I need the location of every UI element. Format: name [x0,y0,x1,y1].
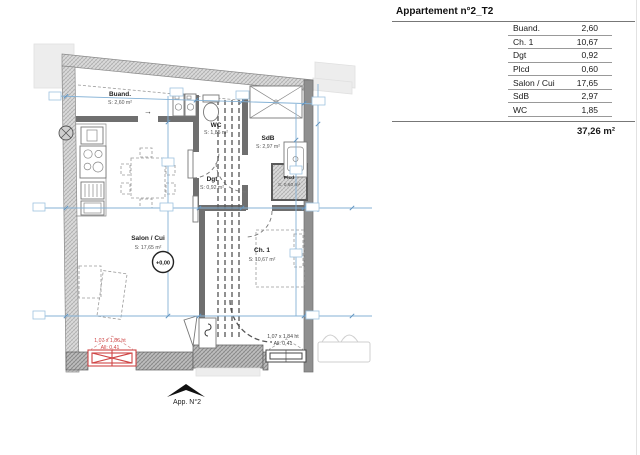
room-name-buand: Buand. [109,91,131,98]
room-area-plcd: S: 0,60 m² [278,182,301,188]
room-name-ch1: Ch. 1 [254,247,270,254]
room-area-sdb: S: 2,97 m² [256,144,280,150]
utility-meter-box [199,318,216,348]
row-label: Salon / Cui [508,79,555,88]
row-value: 0,92 [581,51,612,60]
row-value: 1,85 [581,106,612,115]
floorplan-page: +0,00 App. N°2 Buand. S: 2,60 m² WC S: 1… [0,0,640,455]
row-label: Plcd [508,65,530,74]
row-label: SdB [508,92,529,101]
shaft-lines [218,100,239,340]
row-label: WC [508,106,527,115]
row-value: 0,60 [581,65,612,74]
neighbor-terrace-furniture [318,335,370,362]
table-row: SdB 2,97 [508,90,612,104]
room-name-sdb: SdB [262,135,275,142]
entrance-arrow-icon [167,384,205,397]
room-name-wc: WC [211,122,222,129]
room-name-plcd: Plcd [284,175,294,181]
row-value: 2,60 [581,24,612,33]
room-name-salon: Salon / Cui [131,235,165,242]
area-table: Buand. 2,60 Ch. 1 10,67 Dgt 0,92 Plcd 0,… [508,22,612,117]
table-row: Ch. 1 10,67 [508,36,612,50]
page-edge-divider [636,0,637,455]
legend-bottom-rule [392,121,635,122]
bedroom-window-sill: All: 0,41 [274,341,293,347]
row-value: 10,67 [577,38,612,47]
living-window-sill: All: 0,41 [101,345,120,351]
level-marker: +0,00 [153,252,174,273]
toilet-icon [203,95,219,121]
room-area-ch1: S: 10,67 m² [249,257,276,263]
room-area-dgt: S: 0,92 m² [200,185,224,191]
kitchen-counter [76,124,106,216]
entrance-label: App. N°2 [173,398,201,406]
apartment-title: Appartement n°2_T2 [396,6,635,17]
row-value: 17,65 [577,79,612,88]
row-label: Dgt [508,51,526,60]
washer-dryer-icons [173,94,196,116]
row-label: Ch. 1 [508,38,533,47]
room-name-dgt: Dgt [207,176,219,183]
entrance-marker: App. N°2 [167,384,205,406]
table-row: Plcd 0,60 [508,63,612,77]
row-value: 2,97 [581,92,612,101]
room-area-buand: S: 2,60 m² [108,100,132,106]
room-area-wc: S: 1,85 m² [204,130,228,136]
total-area: 37,26 m² [390,126,635,137]
living-window-dims: 1,07 x 1,86 ht [94,338,126,344]
table-row: WC 1,85 [508,103,612,117]
door-direction-arrow: → [144,107,152,116]
table-row: Buand. 2,60 [508,22,612,36]
bedroom-window-dims: 1,07 x 1,84 ht [267,334,299,340]
area-legend: Appartement n°2_T2 Buand. 2,60 Ch. 1 10,… [390,6,635,137]
room-area-salon: S: 17,65 m² [135,245,162,251]
row-label: Buand. [508,24,540,33]
sofa-icon [79,266,127,319]
table-row: Dgt 0,92 [508,49,612,63]
dining-table-icon [121,148,175,208]
level-marker-label: +0,00 [156,261,170,267]
table-row: Salon / Cui 17,65 [508,76,612,90]
survey-point-icon [59,126,73,140]
